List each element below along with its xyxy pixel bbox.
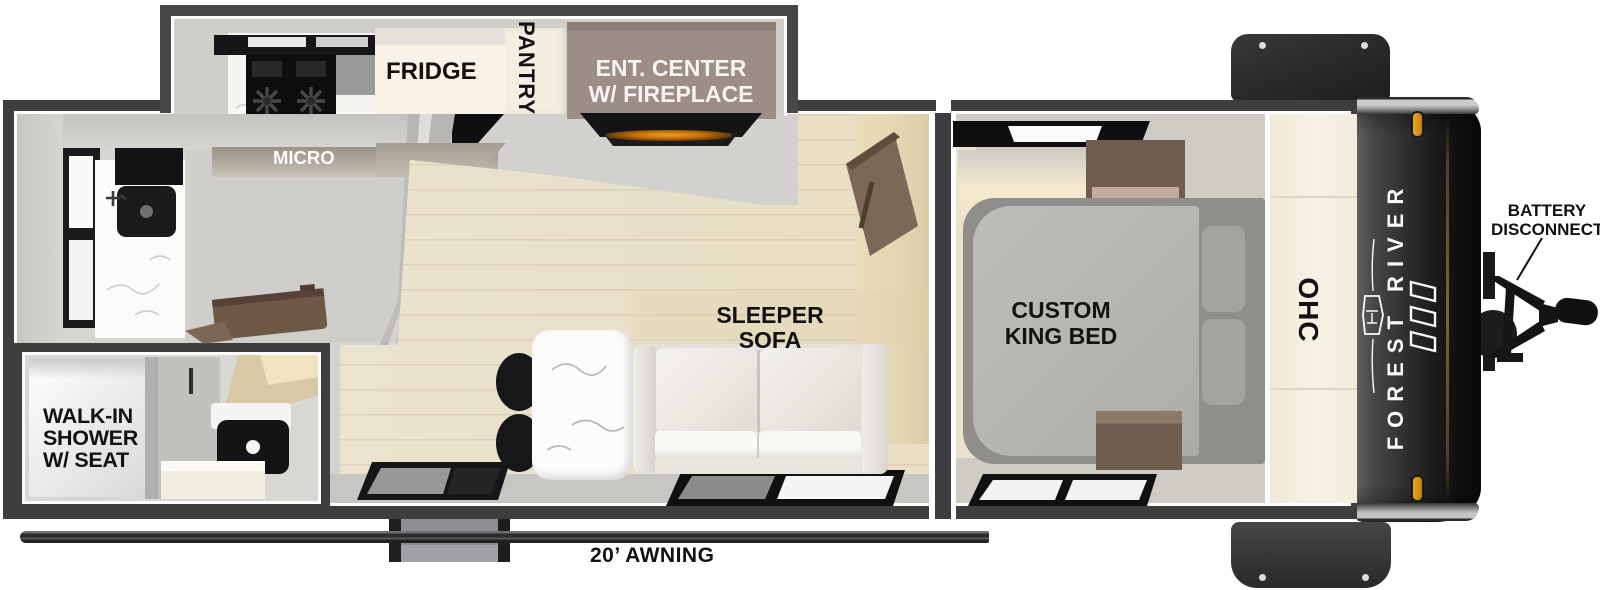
- svg-text:FOREST RIVER: FOREST RIVER: [1383, 180, 1408, 451]
